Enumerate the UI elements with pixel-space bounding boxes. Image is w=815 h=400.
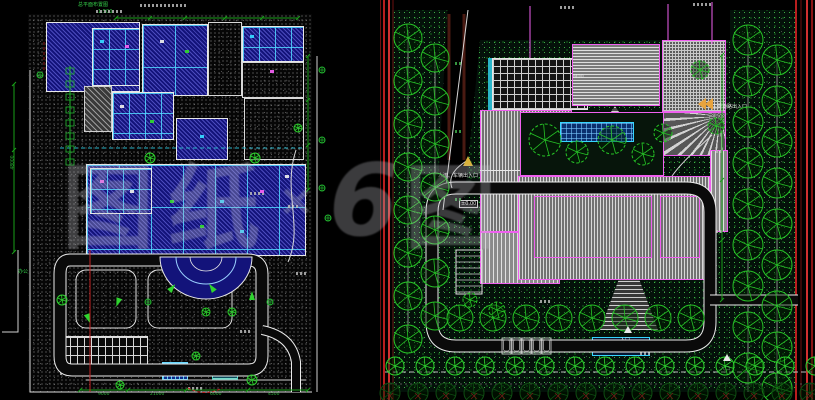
tree-icon <box>421 302 449 330</box>
tree-icon <box>421 44 449 72</box>
tree-icon <box>436 383 456 400</box>
tree-icon <box>733 312 763 342</box>
tree-icon <box>566 141 588 163</box>
tree-icon <box>294 124 302 132</box>
tree-icon <box>536 357 554 375</box>
tree-icon <box>447 305 473 331</box>
tree-icon <box>579 305 605 331</box>
tree-icon <box>394 67 422 95</box>
tree-icon <box>380 383 400 400</box>
tree-icon <box>566 357 584 375</box>
tree-icon <box>716 383 736 400</box>
tree-icon <box>489 302 505 318</box>
parking-stack <box>456 250 482 294</box>
tree-icon <box>513 305 539 331</box>
tree-icon <box>476 357 494 375</box>
tree-icon <box>632 143 654 165</box>
tree-icon <box>228 308 236 316</box>
tree-icon <box>660 383 680 400</box>
tree-icon <box>116 381 124 389</box>
tree-icon <box>686 357 704 375</box>
tree-icon <box>598 126 626 154</box>
tree-icon <box>250 153 260 163</box>
tree-icon <box>546 305 572 331</box>
tree-icon <box>421 216 449 244</box>
road-arrow <box>84 313 93 324</box>
tree-icon <box>394 24 422 52</box>
entrance-arrow-icon <box>705 98 713 110</box>
tree-icon <box>529 124 561 156</box>
tree-icon <box>394 153 422 181</box>
tree-icon <box>463 293 477 307</box>
entry-plaza <box>160 257 252 299</box>
tree-icon <box>386 357 404 375</box>
adjacent-sheet-edge <box>2 250 18 332</box>
tree-icon <box>394 239 422 267</box>
tree-icon <box>762 291 792 321</box>
vector-overlay <box>0 0 815 400</box>
tree-icon <box>548 383 568 400</box>
tree-icon <box>57 295 67 305</box>
tree-icon <box>202 308 210 316</box>
tree-icon <box>733 25 763 55</box>
tree-icon <box>520 383 540 400</box>
tree-icon <box>800 383 815 400</box>
road-arrow <box>113 297 122 308</box>
tree-icon <box>733 230 763 260</box>
tree-icon <box>776 357 794 375</box>
tree-icon <box>656 357 674 375</box>
tree-icon <box>421 259 449 287</box>
road-arrow <box>249 291 255 300</box>
tree-icon <box>762 168 792 198</box>
tree-icon <box>733 107 763 137</box>
tree-icon <box>492 383 512 400</box>
tree-icon <box>762 250 792 280</box>
tree-icon <box>762 86 792 116</box>
tree-icon <box>632 383 652 400</box>
tree-icon <box>604 383 624 400</box>
site-boundary <box>30 70 312 392</box>
tree-icon <box>612 305 638 331</box>
tree-icon <box>421 173 449 201</box>
tree-icon <box>708 118 724 134</box>
tree-icon <box>691 61 709 79</box>
tree-icon <box>744 383 764 400</box>
tree-icon <box>733 189 763 219</box>
tree-icon <box>576 383 596 400</box>
cad-viewer-canvas: 总平面布置图 1:500 办公 9000 21000 6000 4500 480… <box>0 0 815 400</box>
tree-icon <box>733 66 763 96</box>
tree-icon <box>464 383 484 400</box>
entrance-arrow-icon <box>698 98 706 110</box>
tree-icon <box>645 305 671 331</box>
tree-icon <box>654 124 672 142</box>
tree-icon <box>762 209 792 239</box>
tree-icon <box>394 282 422 310</box>
tree-icon <box>408 383 428 400</box>
tree-icon <box>772 383 792 400</box>
tree-icon <box>421 130 449 158</box>
entry-curve <box>672 135 712 176</box>
tree-icon <box>626 357 644 375</box>
tree-icon <box>733 148 763 178</box>
tree-icon <box>192 352 200 360</box>
tree-icon <box>746 357 764 375</box>
tree-icon <box>421 87 449 115</box>
tree-icon <box>394 325 422 353</box>
tree-icon <box>762 45 792 75</box>
tree-icon <box>145 153 155 163</box>
tree-icon <box>394 196 422 224</box>
tree-icon <box>762 127 792 157</box>
tree-icon <box>733 271 763 301</box>
tree-icon <box>416 357 434 375</box>
road-island <box>76 270 136 328</box>
tree-icon <box>688 383 708 400</box>
path-curve <box>288 150 296 262</box>
tree-icon <box>394 110 422 138</box>
tree-icon <box>678 305 704 331</box>
tree-icon <box>596 357 614 375</box>
tree-icon <box>446 357 464 375</box>
tree-icon <box>247 375 257 385</box>
tree-icon <box>506 357 524 375</box>
